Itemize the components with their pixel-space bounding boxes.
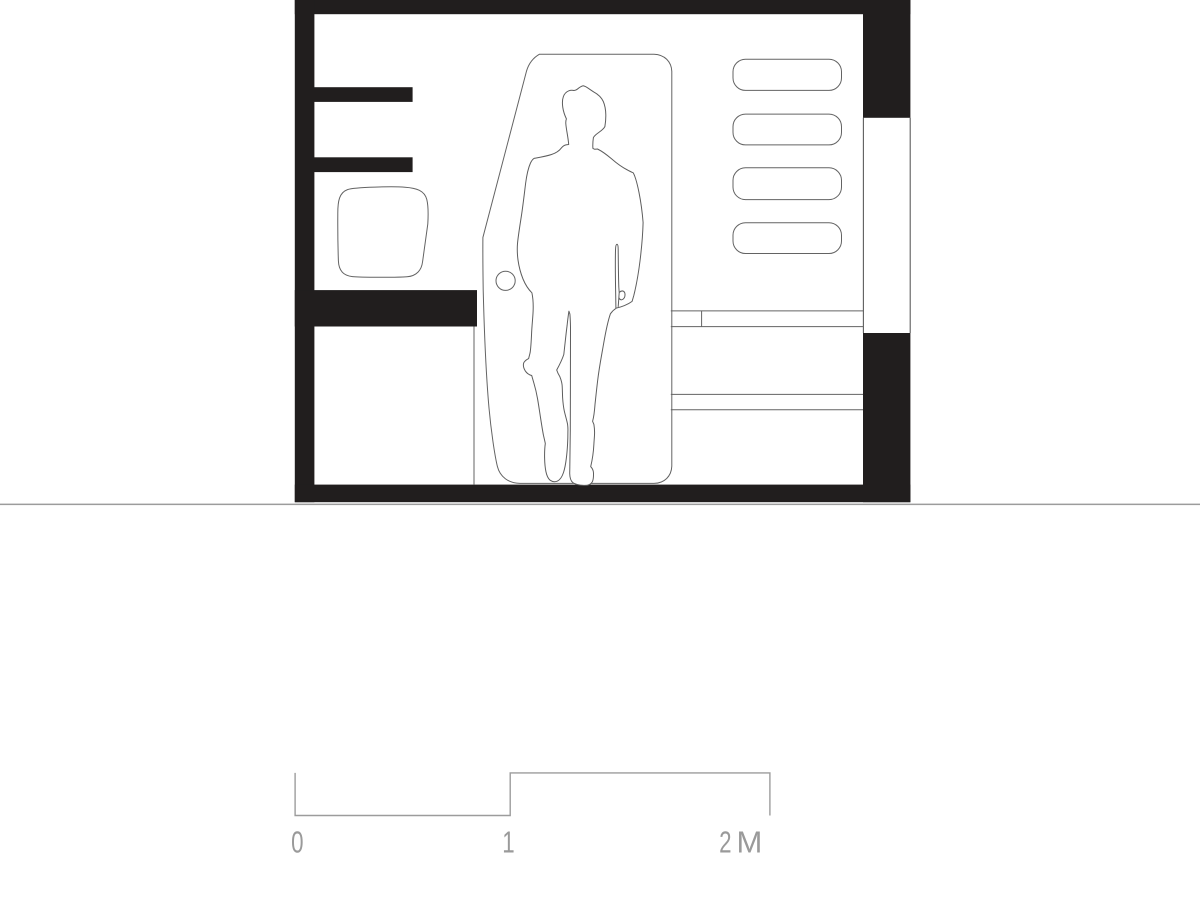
svg-text:2: 2 [719, 825, 731, 859]
svg-text:0: 0 [291, 825, 303, 859]
svg-text:M: M [736, 825, 762, 860]
svg-text:1: 1 [502, 825, 514, 859]
